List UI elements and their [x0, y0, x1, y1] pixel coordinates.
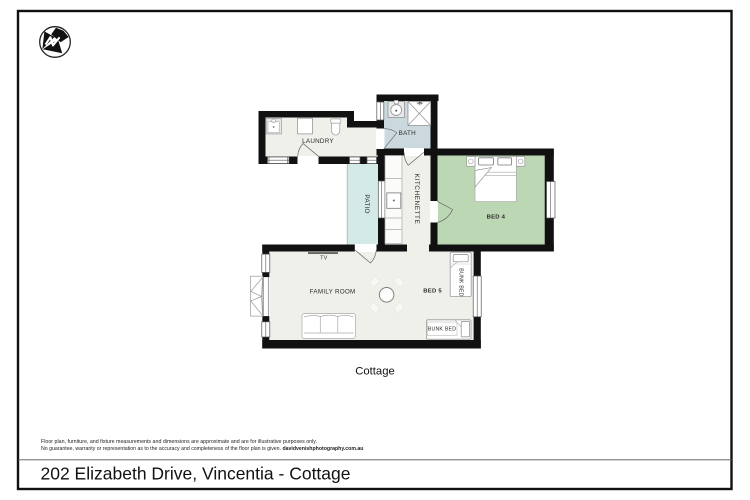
- svg-text:Floor plan, furniture, and fix: Floor plan, furniture, and fixture measu…: [41, 439, 317, 445]
- svg-text:202 Elizabeth Drive, Vincentia: 202 Elizabeth Drive, Vincentia - Cottage: [41, 464, 351, 484]
- svg-text:LAUNDRY: LAUNDRY: [302, 138, 334, 145]
- svg-text:BUNK BED: BUNK BED: [428, 327, 457, 333]
- svg-text:BATH: BATH: [399, 130, 417, 137]
- svg-text:No guarantee, warranty or repr: No guarantee, warranty or representation…: [41, 446, 364, 452]
- svg-text:TV: TV: [320, 256, 328, 262]
- svg-text:Cottage: Cottage: [355, 365, 395, 377]
- svg-text:KITCHENETTE: KITCHENETTE: [413, 174, 420, 225]
- svg-text:BED 5: BED 5: [423, 288, 442, 294]
- svg-text:FAMILY ROOM: FAMILY ROOM: [310, 288, 356, 295]
- svg-text:PATIO: PATIO: [363, 194, 370, 213]
- svg-text:BUNK BED: BUNK BED: [458, 268, 464, 297]
- svg-text:BED 4: BED 4: [487, 215, 506, 221]
